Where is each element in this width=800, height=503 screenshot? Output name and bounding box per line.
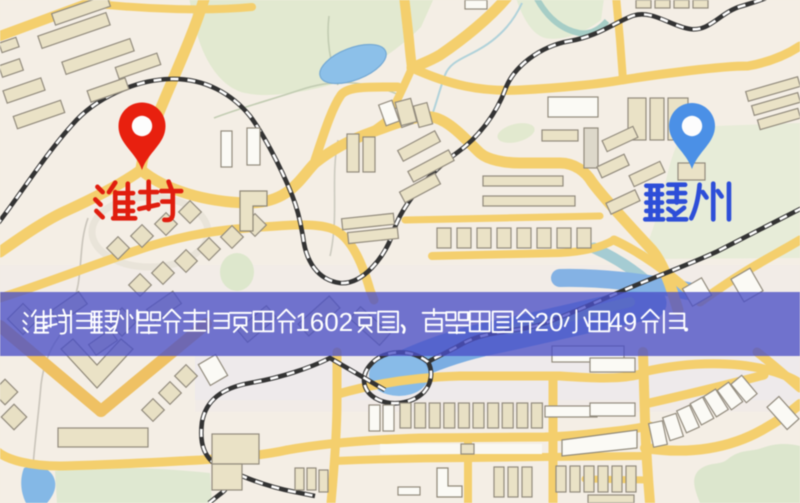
- svg-text:20: 20: [535, 307, 564, 337]
- svg-text:1602: 1602: [295, 307, 353, 337]
- svg-text:49: 49: [608, 307, 637, 337]
